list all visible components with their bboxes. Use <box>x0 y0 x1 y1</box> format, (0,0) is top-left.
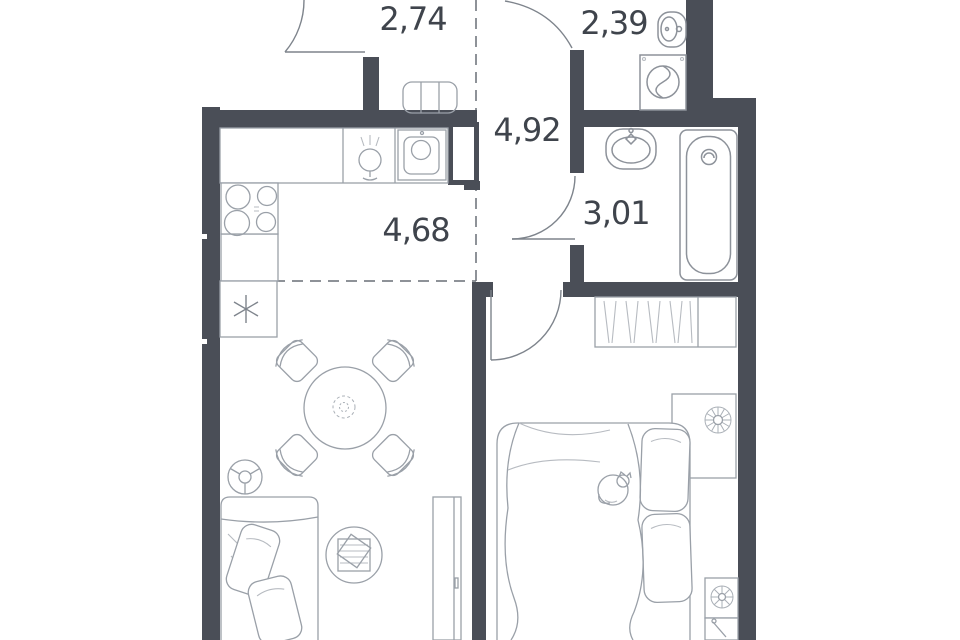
vent-shaft <box>451 125 477 183</box>
label-loggia-area: 2,74 <box>379 0 446 38</box>
wall-joint-mark <box>202 234 207 239</box>
right-wall <box>738 110 756 640</box>
pouf <box>326 527 382 583</box>
label-wc-area: 2,39 <box>580 4 647 42</box>
label-kitchen-living-area: 4,68 <box>382 211 449 249</box>
sink-tap-dot <box>629 129 633 133</box>
counter-low-cabinet <box>221 234 278 281</box>
mid-wall-cap <box>472 282 493 297</box>
floor-plan: 2,74 2,39 4,92 3,01 4,68 <box>0 0 960 640</box>
bathroom-door <box>512 176 575 239</box>
bathroom-door-arc <box>512 176 575 239</box>
double-bed <box>497 423 693 640</box>
wc-door-arc <box>505 1 572 48</box>
balcony-door <box>285 0 365 52</box>
refrigerator <box>220 281 277 337</box>
stove <box>221 183 278 236</box>
basin-drain <box>666 28 669 31</box>
console-body <box>433 497 461 640</box>
tub-inner <box>687 137 731 274</box>
balcony-door-jamb <box>363 57 379 114</box>
label-hallway-area: 4,92 <box>493 111 560 149</box>
floor-lamp <box>228 460 262 494</box>
plant-icon <box>711 586 733 608</box>
center-wall <box>472 282 486 640</box>
bed-pillow <box>641 513 692 603</box>
mid-wall-east <box>563 282 756 297</box>
dining-set <box>271 335 419 481</box>
sink-tap <box>626 134 636 144</box>
bedroom-door-arc <box>491 290 561 360</box>
nightstand-bottom <box>705 578 738 618</box>
radiator-bench <box>403 82 457 113</box>
floor-lamp-bedroom <box>705 618 738 640</box>
bed-pillow <box>640 428 691 512</box>
tub-faucet <box>704 153 714 158</box>
bathroom-sink <box>606 129 656 170</box>
tv-console <box>433 497 461 640</box>
refrigerator-body <box>220 281 277 337</box>
wash-basin <box>658 12 686 47</box>
balcony-door-arc <box>285 0 304 52</box>
radiator-body <box>403 82 457 113</box>
dining-chair <box>271 430 322 481</box>
dining-chair <box>368 430 419 481</box>
sofa <box>221 497 318 640</box>
plant-icon <box>705 407 731 433</box>
hallway-east-wall-upper <box>570 50 584 173</box>
step-wall <box>686 98 756 112</box>
bedroom-door <box>491 290 561 360</box>
dining-chair <box>271 335 322 386</box>
pouf-tray <box>326 527 382 583</box>
bathtub <box>680 130 737 280</box>
lamp-hub <box>239 471 251 483</box>
wall-joint-mark <box>202 339 207 344</box>
label-bathroom-area: 3,01 <box>582 194 649 232</box>
basin-tap <box>677 27 682 32</box>
left-wall <box>202 107 220 640</box>
lamp-base <box>705 618 738 640</box>
wc-east-wall <box>686 0 713 112</box>
wc-bathroom-divider-wall <box>584 110 756 127</box>
dining-chair <box>368 335 419 386</box>
wardrobe <box>595 297 736 347</box>
washing-machine <box>640 55 686 110</box>
dining-table <box>304 367 386 449</box>
sink-bowl <box>612 137 650 163</box>
